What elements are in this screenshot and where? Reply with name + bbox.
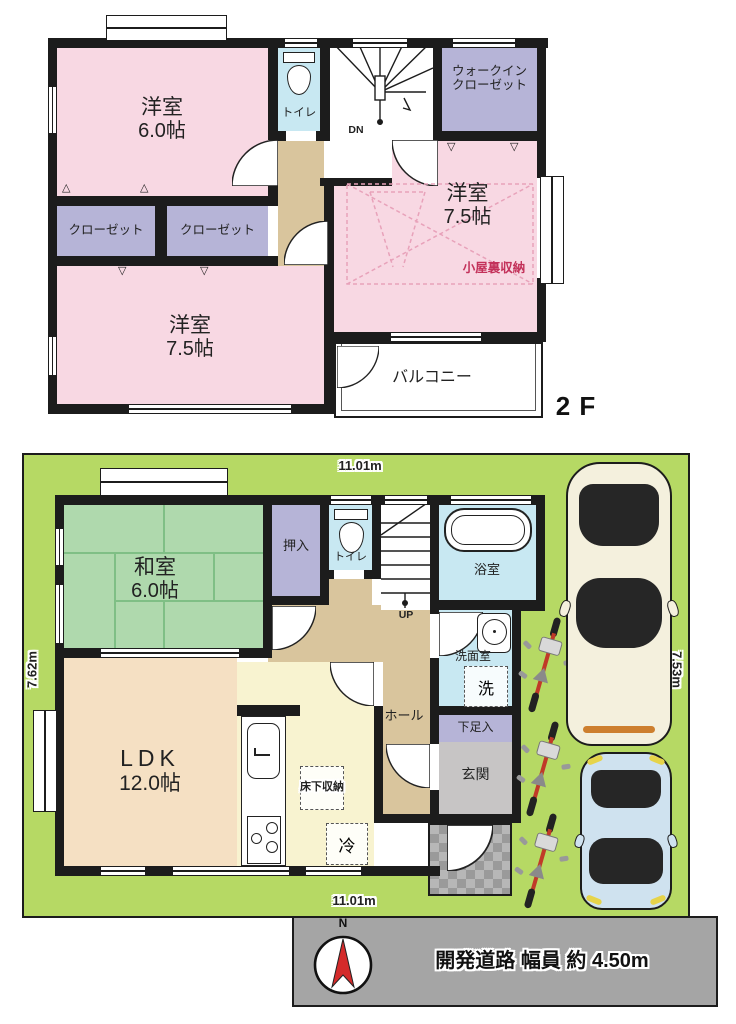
door-marker-icon: ▽ [510,142,518,153]
f2-wall [433,38,442,141]
stove-icon [247,816,281,864]
door-arc-icon [386,744,430,788]
door-marker-icon: ▽ [200,266,208,277]
f2-wall [268,48,278,140]
room-size: 12.0帖 [119,772,181,796]
f2-wic-label: ウォークイン クローゼット [442,58,537,98]
f1-window [384,495,428,505]
attic-storage-label: 小屋裏収納 [455,260,533,275]
f2-window [48,336,57,376]
f1-window [100,866,146,876]
room-name: クローゼット [452,78,527,92]
faucet [254,754,270,756]
room-name: LDK [120,746,180,772]
floorplan-image: DN [0,0,736,1024]
f1-bathroom-label: 浴室 [452,562,522,578]
kitchen-sink-icon [247,723,280,779]
f2-bay-window-top [106,15,227,41]
toilet-icon [283,52,315,63]
door-arc-icon [330,662,374,706]
f2-toilet-door [286,131,316,141]
f1-window [305,866,362,876]
refrigerator-box: 冷 [326,823,368,865]
washbasin-drain [493,630,496,633]
refrigerator-label: 冷 [339,832,356,857]
f1-window [450,495,532,505]
f1-hall-floor [383,662,430,814]
f2-balcony-label: バルコニー [366,368,498,388]
room-name: 和室 [134,556,176,580]
f2-wall [433,131,546,141]
door-arc-icon [232,140,278,186]
f2-window [352,38,408,48]
f2-window [48,86,57,134]
burner [266,822,278,834]
faucet [254,748,256,756]
f2-closet-right-label: クローゼット [167,222,268,238]
f1-wall [430,706,516,715]
room-name: ウォークイン [452,64,527,78]
f1-washitsu-sliding [100,648,240,658]
f2-bay-window-right [540,176,564,284]
f1-window [55,528,64,566]
f1-wall [428,814,521,823]
f1-wall [430,600,545,610]
burner [266,841,278,853]
washer-box: 洗 [464,666,508,707]
room-size: 6.0帖 [138,120,186,142]
compass-icon [311,930,375,996]
dimension-top: 11.01m [318,459,402,474]
f2-window [128,404,292,414]
f1-oshiire-label: 押入 [272,538,320,554]
room-size: 6.0帖 [131,580,179,602]
f2-window [284,38,318,48]
bathtub-icon [444,508,532,552]
f2-wall [324,178,334,414]
f2-wall [537,38,546,178]
staircase-down-icon [330,38,433,126]
entrance-door-arc-icon [447,825,493,871]
f1-washroom-label: 洗面室 [437,649,509,664]
f1-wall [320,505,329,605]
room-size: 7.5帖 [444,206,492,228]
dimension-bottom: 11.01m [312,894,396,909]
room-name: 洋室 [141,96,183,120]
car-blue-icon [580,752,672,910]
washbasin-icon [477,613,511,653]
room-name: 洋室 [169,314,211,338]
car-white-icon [566,462,672,746]
f2-closet-left-label: クローゼット [57,222,155,238]
f2-toilet-label: トイレ [278,106,320,120]
room-name: 洋室 [447,182,489,206]
f1-ldk-label: LDK 12.0帖 [80,742,220,800]
dimension-left: 7.62m [26,640,41,700]
f1-hall-label: ホール [378,708,430,724]
door-arc-icon [284,221,328,265]
f1-wall [237,705,300,716]
f2-wall [320,38,330,141]
f1-shoebox-label: 下足入 [439,717,512,739]
f2-bedroom-75r-label: 洋室 7.5帖 [400,178,535,232]
underfloor-storage-label: 床下収納 [288,780,356,795]
f1-window [172,866,290,876]
f1-wall [263,596,329,605]
tatami-line [163,600,165,648]
door-marker-icon: ▽ [118,266,126,277]
f1-wall [430,495,439,610]
burner [251,833,262,844]
f2-bedroom-75l-label: 洋室 7.5帖 [120,310,260,364]
f1-washitsu-label: 和室 6.0帖 [90,552,220,606]
bathtub-inner [451,515,525,545]
f1-step-floor [374,823,436,866]
f1-window [55,584,64,644]
f1-wall [536,495,545,611]
f1-toilet-label: トイレ [329,550,372,564]
tatami-line [163,505,165,552]
road-label: 開発道路 幅員 約 4.50m [420,947,664,975]
f1-wall [263,505,272,658]
door-arc-icon [272,606,316,650]
washer-label: 洗 [478,675,494,699]
f2-wall [48,256,278,266]
f1-entrance-door-gap [430,744,439,790]
f1-toilet-door [334,570,364,579]
f1-wall [374,814,436,823]
room-size: 7.5帖 [166,338,214,360]
floor2-label: 2 F [548,392,604,422]
staircase-up-icon [381,495,430,610]
door-marker-icon: ▽ [447,142,455,153]
door-marker-icon: △ [140,183,148,194]
f1-up-label: UP [388,609,424,622]
f2-dn-label: DN [338,124,374,137]
f2-window [452,38,516,48]
toilet-icon [334,509,368,520]
f1-bay-window-left [33,710,57,812]
f1-window [330,495,372,505]
f1-bay-window-top [100,468,228,496]
f1-hall-floor [329,579,372,605]
door-marker-icon: △ [62,183,70,194]
compass-north-label: N [334,917,352,930]
f2-window [390,332,482,342]
f2-bedroom-60-label: 洋室 6.0帖 [92,92,232,146]
f1-entrance-label: 玄関 [439,766,512,784]
f1-wall [372,495,381,579]
